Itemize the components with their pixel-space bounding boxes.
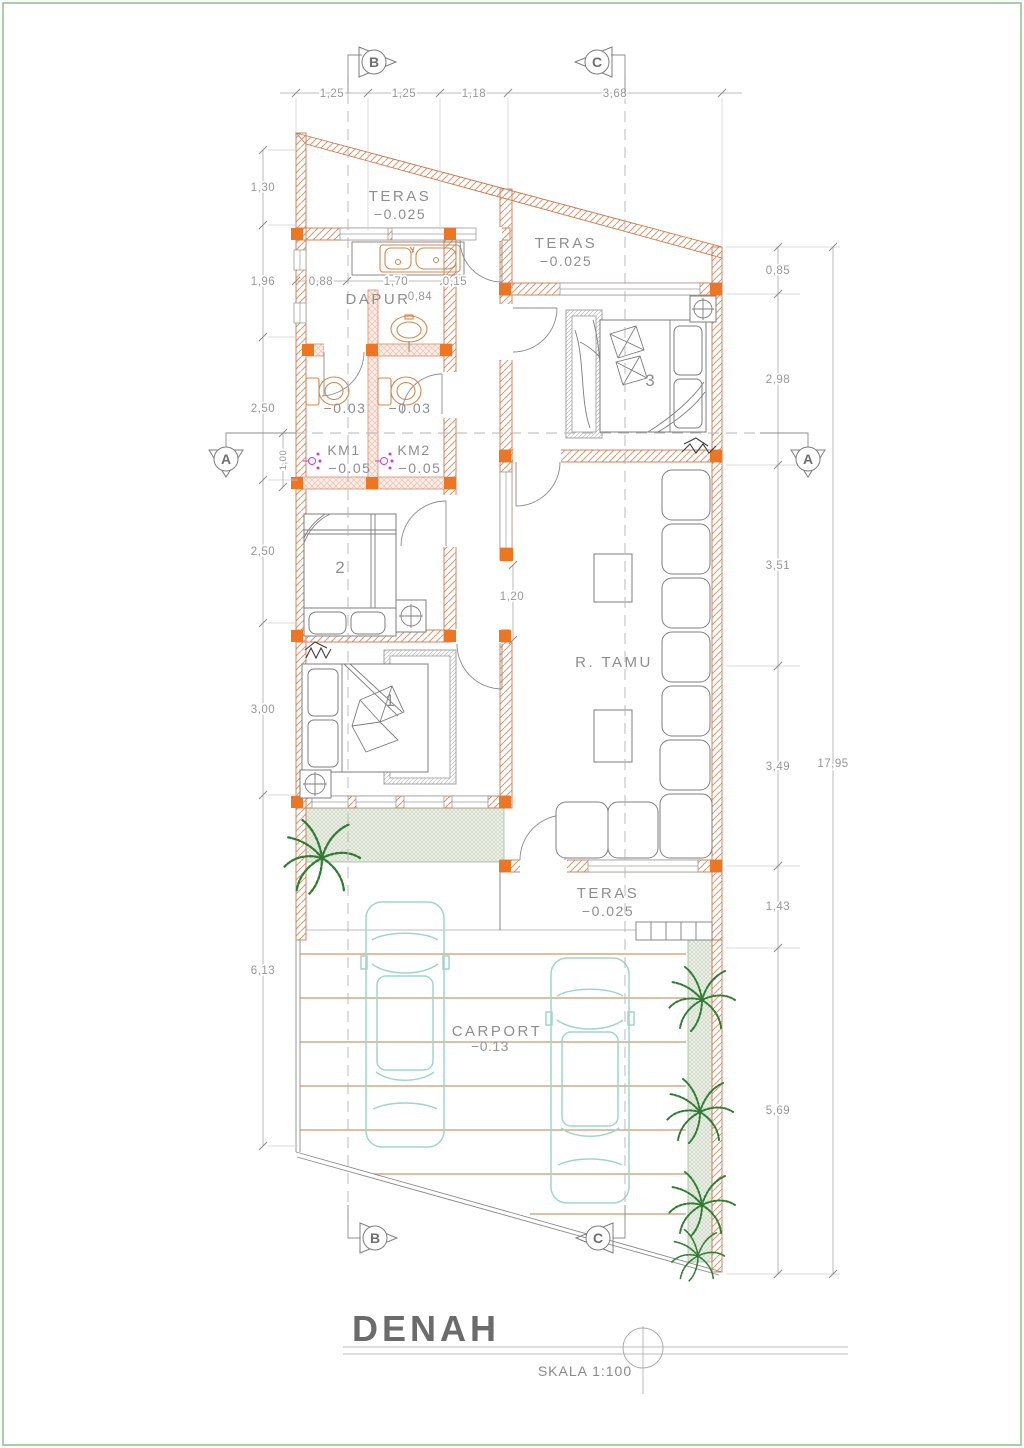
label-teras-top-left-elev: −0.025 (374, 206, 426, 222)
label-wc-right-elev: −0.03 (389, 400, 432, 416)
dim-label: 1,25 (392, 88, 416, 100)
dim-label: 1,96 (251, 276, 275, 288)
label-km1-elev: −0.05 (329, 460, 372, 476)
label-km1: KM1 (327, 442, 360, 458)
dim-label-overall: 17,95 (817, 758, 848, 770)
dim-label: 1,25 (320, 88, 344, 100)
label-bedroom-2: 2 (335, 558, 344, 577)
label-r-tamu: R. TAMU (575, 654, 653, 671)
drawing-scale: SKALA 1:100 (538, 1363, 632, 1379)
wall-right-lower (712, 940, 722, 1272)
floor-plan: 1,25 1,25 1,18 3,68 1,30 1,96 2,50 2,50 … (0, 0, 1024, 1448)
dim-label: 3,51 (766, 560, 790, 572)
label-bedroom-1: 1 (385, 691, 394, 710)
carport-paving (300, 954, 686, 1214)
dim-label: 0,88 (309, 276, 333, 288)
dimension-km: 1,00 (278, 429, 289, 491)
dim-label: 3,68 (603, 88, 627, 100)
marker-letter: A (803, 451, 813, 467)
label-teras-top-left: TERAS (369, 188, 432, 205)
wall-hall (444, 240, 456, 640)
dim-label: 2,50 (251, 546, 275, 558)
label-teras-front-elev: −0.025 (582, 903, 634, 919)
label-km2: KM2 (397, 442, 430, 458)
dimension-right: 0,85 2,98 3,51 3,49 1,43 5,69 17,95 (726, 243, 849, 1278)
section-marker-b-top: B (348, 47, 396, 93)
lamp-1 (305, 642, 331, 658)
dim-label: 0,84 (408, 291, 432, 303)
dim-label: 2,98 (766, 374, 790, 386)
dim-label: 1,20 (500, 591, 524, 603)
dim-label: 0,85 (766, 265, 790, 277)
marker-letter: B (369, 54, 379, 70)
title-block: DENAH SKALA 1:100 (343, 1308, 848, 1394)
label-bedroom-3: 3 (645, 371, 654, 390)
side-table-1 (300, 770, 331, 798)
dim-label: 5,69 (766, 1105, 790, 1117)
dim-label: 6,13 (251, 965, 275, 977)
marker-letter: A (221, 451, 231, 467)
label-dapur: DAPUR (345, 291, 410, 308)
dim-label: 0,15 (443, 276, 467, 288)
bed-2 (304, 514, 396, 636)
drawing-title: DENAH (352, 1308, 500, 1349)
dimension-left: 1,30 1,96 2,50 2,50 3,00 6,13 (251, 146, 298, 1150)
wall-alcove (368, 344, 452, 356)
label-teras-top-right: TERAS (535, 235, 598, 252)
dim-label: 1,00 (278, 450, 289, 471)
dim-label: 1,70 (384, 276, 408, 288)
section-marker-a-right: A (760, 433, 825, 477)
section-marker-c-top: C (575, 47, 625, 93)
dim-label: 1,43 (766, 901, 790, 913)
section-marker-c-bottom: C (576, 1205, 625, 1253)
side-table-3 (690, 296, 716, 322)
wall-right (712, 247, 722, 940)
dim-label: 3,00 (251, 704, 275, 716)
label-teras-top-right-elev: −0.025 (540, 253, 592, 269)
marker-letter: C (592, 54, 602, 70)
dim-label: 1,30 (251, 182, 275, 194)
label-teras-front: TERAS (577, 885, 640, 902)
label-km2-elev: −0.05 (399, 460, 442, 476)
bed-1 (302, 664, 428, 772)
section-marker-b-bottom: B (348, 1205, 397, 1253)
marker-letter: C (593, 1230, 603, 1246)
car-1 (361, 902, 449, 1147)
side-table-2 (396, 600, 426, 632)
car-2 (546, 958, 634, 1203)
label-wc-left-elev: −0.03 (324, 400, 367, 416)
label-carport-elev: −0.13 (471, 1038, 509, 1054)
dim-label: 3,49 (766, 761, 790, 773)
marker-letter: B (370, 1230, 380, 1246)
dim-label: 1,18 (462, 88, 486, 100)
dim-label: 2,50 (251, 403, 275, 415)
